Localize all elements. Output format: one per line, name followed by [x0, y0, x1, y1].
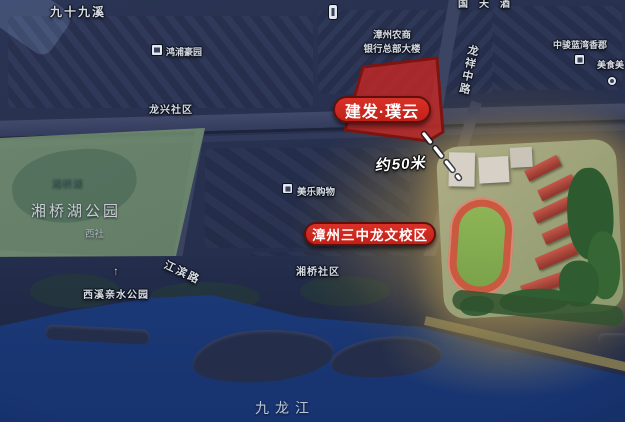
label-park-xixi: 西溪亲水公园	[83, 286, 149, 301]
map-canvas: 九十九溪 鸿浦豪园 龙兴社区 漳州农商 银行总部大楼 龙祥中路 国天酒 中骏蓝湾…	[0, 0, 625, 422]
rooftop-texture	[8, 16, 313, 108]
label-estate-zhongjun: 中骏蓝湾香郡	[553, 38, 607, 51]
label-top-edge-partial: 国天酒	[458, 0, 521, 10]
arrow-up-icon: ↑	[113, 264, 119, 278]
label-food-street: 美食美	[597, 58, 624, 71]
label-stream: 九十九溪	[50, 3, 106, 20]
project-marker-pill: 建发·璞云	[333, 96, 431, 123]
campus-tower	[448, 152, 475, 186]
running-track	[446, 195, 517, 297]
school-marker-pill: 漳州三中龙文校区	[304, 222, 436, 246]
estate-building-icon	[574, 54, 585, 65]
label-river-jiulong: 九龙江	[255, 398, 315, 418]
label-lake-xiangqiao: 湘桥湖	[52, 176, 84, 190]
label-village-xishe: 西社	[85, 226, 104, 240]
label-park-xiangqiaohu: 湘桥湖公园	[31, 200, 121, 221]
distance-label: 约50米	[375, 152, 429, 176]
campus-tower	[510, 147, 533, 168]
label-community-xiangqiao: 湘桥社区	[296, 263, 340, 278]
river-island	[598, 333, 625, 346]
label-community-longxing: 龙兴社区	[149, 101, 193, 116]
campus-tower	[478, 156, 509, 184]
sports-field	[455, 205, 506, 288]
estate-building-icon	[151, 44, 163, 56]
food-icon	[607, 76, 617, 86]
label-bank-line1: 漳州农商	[357, 29, 427, 43]
label-bank-line2: 银行总部大楼	[357, 43, 427, 57]
label-estate-hongpu: 鸿浦豪园	[166, 45, 202, 58]
monument-icon	[328, 4, 338, 20]
label-bank-hq: 漳州农商 银行总部大楼	[357, 29, 427, 57]
label-mall-meile: 美乐购物	[297, 184, 335, 198]
shopping-icon	[282, 183, 293, 194]
